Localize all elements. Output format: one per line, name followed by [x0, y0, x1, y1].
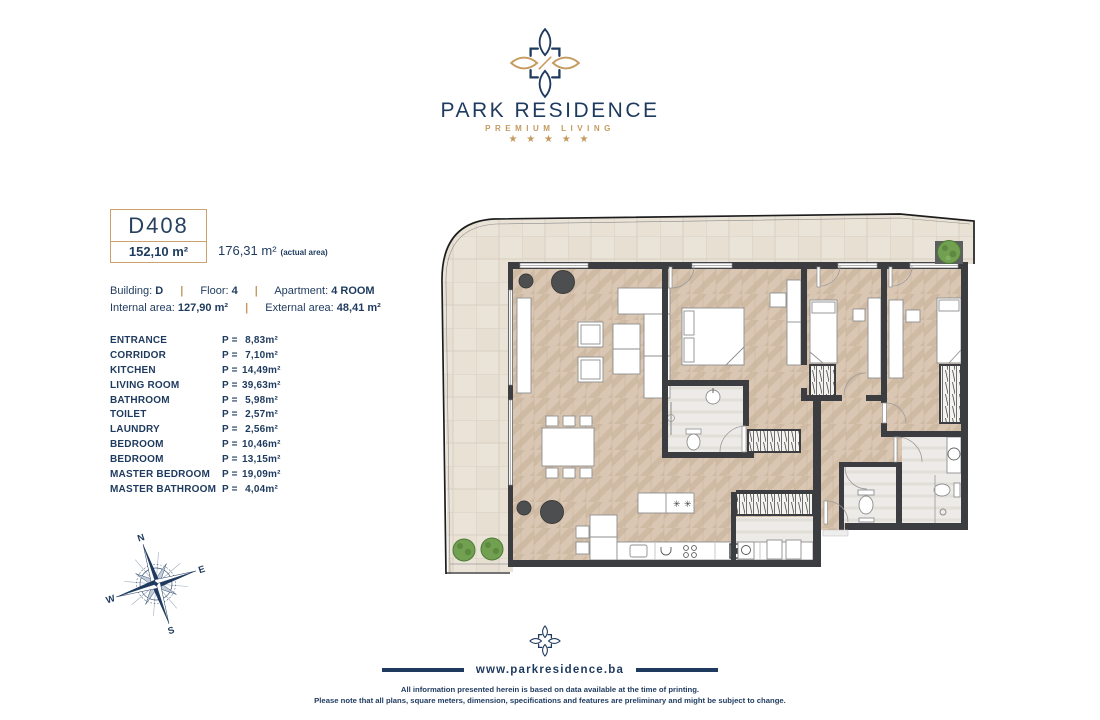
room-name: MASTER BATHROOM — [110, 484, 222, 499]
room-name: LIVING ROOM — [110, 380, 222, 395]
dining-chair — [580, 468, 592, 478]
dining-chair — [546, 468, 558, 478]
room-row-master-bedroom: MASTER BEDROOMP =19,09m² — [110, 469, 278, 484]
apartment-value: 4 ROOM — [331, 285, 374, 297]
compass-west-label: W — [105, 593, 117, 606]
pillow — [812, 302, 835, 313]
toilet-tank — [686, 429, 701, 434]
pillow — [684, 311, 694, 335]
unit-badge: D408 152,10 m² — [110, 209, 207, 263]
footer-emblem-icon — [529, 624, 561, 658]
room-schedule: ENTRANCEP =8,83m² CORRIDORP =7,10m² KITC… — [110, 335, 278, 499]
toilet-icon — [687, 434, 700, 450]
area-info-row: Internal area: 127,90 m² | External area… — [110, 302, 430, 314]
room-eq: P = — [222, 469, 242, 484]
internal-area-label: Internal area: — [110, 302, 175, 314]
building-label: Building: — [110, 285, 152, 297]
toilet-icon — [859, 496, 873, 514]
floor-label: Floor: — [200, 285, 228, 297]
brand-subtitle: PREMIUM LIVING — [0, 124, 1100, 133]
vanity-counter — [947, 437, 961, 473]
armchair-cushion — [581, 360, 600, 379]
actual-area-note: (actual area) — [281, 248, 328, 257]
dining-table — [542, 428, 594, 466]
floor-value: 4 — [232, 285, 238, 297]
toilet-tank — [954, 483, 960, 497]
left-rule — [382, 668, 464, 672]
bush-icon — [481, 538, 503, 560]
room-area: 39,63m² — [242, 380, 281, 395]
room-area: 7,10m² — [242, 350, 278, 365]
room-name: MASTER BEDROOM — [110, 469, 222, 484]
room-eq: P = — [222, 380, 242, 395]
compass-south-label: S — [167, 625, 176, 637]
room-eq: P = — [222, 395, 242, 410]
compass-north-label: N — [136, 532, 146, 545]
room-eq: P = — [222, 484, 242, 499]
apartment-label: Apartment: — [274, 285, 328, 297]
shelf — [906, 310, 920, 322]
building-value: D — [155, 285, 163, 297]
side-table — [517, 501, 531, 515]
separator: | — [231, 302, 262, 314]
pillow — [939, 300, 959, 311]
laundry — [738, 540, 801, 559]
website-url: www.parkresidence.ba — [464, 664, 636, 676]
park-residence-emblem-icon — [509, 27, 581, 99]
room-area: 2,57m² — [242, 409, 278, 424]
room-eq: P = — [222, 424, 242, 439]
dining-chair — [563, 416, 575, 426]
brochure-page: PARK RESIDENCE PREMIUM LIVING ★ ★ ★ ★ ★ … — [0, 0, 1100, 720]
hob-icon: ✳ — [684, 499, 692, 509]
hob-icon: ✳ — [673, 499, 681, 509]
laundry-cabinet — [786, 540, 801, 559]
coffee-table — [541, 501, 564, 524]
sink — [630, 545, 647, 557]
room-row-toilet: TOILETP =2,57m² — [110, 409, 278, 424]
external-area-label: External area: — [265, 302, 333, 314]
shelf — [853, 309, 865, 321]
internal-area-value: 127,90 m² — [178, 302, 228, 314]
washing-machine — [738, 542, 754, 559]
cabinet — [576, 526, 589, 538]
right-rule — [636, 668, 718, 672]
room-eq: P = — [222, 439, 242, 454]
room-eq: P = — [222, 350, 242, 365]
entrance-step — [823, 530, 848, 536]
room-area: 13,15m² — [242, 454, 281, 469]
building-info-row: Building: D | Floor: 4 | Apartment: 4 RO… — [110, 285, 430, 297]
room-name: BEDROOM — [110, 439, 222, 454]
compass-east-label: E — [197, 564, 206, 576]
five-stars-icon: ★ ★ ★ ★ ★ — [0, 134, 1100, 145]
unit-total-area: 152,10 m² — [111, 241, 206, 262]
bathroom-floor — [668, 386, 743, 452]
room-eq: P = — [222, 454, 242, 469]
room-row-bedroom-2: BEDROOMP =13,15m² — [110, 454, 278, 469]
corridor-wardrobe — [748, 430, 800, 452]
hallway-wardrobe — [736, 493, 813, 515]
desk — [868, 298, 881, 378]
pillow — [684, 338, 694, 362]
room-area: 2,56m² — [242, 424, 278, 439]
disclaimer-line-1: All information presented herein is base… — [0, 685, 1100, 694]
wardrobe — [787, 280, 801, 365]
actual-area-value: 176,31 m² — [218, 243, 277, 258]
room-area: 8,83m² — [242, 335, 278, 350]
room-row-entrance: ENTRANCEP =8,83m² — [110, 335, 278, 350]
room-row-living-room: LIVING ROOMP =39,63m² — [110, 380, 278, 395]
room-area: 4,04m² — [242, 484, 278, 499]
toilet-tank — [858, 490, 874, 495]
bush-icon — [453, 539, 475, 561]
room-area: 5,98m² — [242, 395, 278, 410]
room-name: CORRIDOR — [110, 350, 222, 365]
website-row: www.parkresidence.ba — [0, 661, 1100, 679]
dining-chair — [563, 468, 575, 478]
room-row-laundry: LAUNDRYP =2,56m² — [110, 424, 278, 439]
room-row-bedroom-1: BEDROOMP =10,46m² — [110, 439, 278, 454]
side-table — [519, 274, 533, 288]
cabinet — [576, 542, 589, 554]
room-area: 10,46m² — [242, 439, 281, 454]
actual-area: 176,31 m²(actual area) — [218, 243, 328, 258]
room-name: TOILET — [110, 409, 222, 424]
room-row-kitchen: KITCHENP =14,49m² — [110, 365, 278, 380]
room-row-bathroom: BATHROOMP =5,98m² — [110, 395, 278, 410]
wardrobe — [940, 365, 961, 423]
room-name: BEDROOM — [110, 454, 222, 469]
bedside-table — [770, 293, 786, 307]
room-row-master-bathroom: MASTER BATHROOMP =4,04m² — [110, 484, 278, 499]
room-area: 14,49m² — [242, 365, 281, 380]
room-area: 19,09m² — [242, 469, 281, 484]
separator: | — [166, 285, 197, 297]
room-eq: P = — [222, 365, 242, 380]
toilet-base — [859, 518, 874, 522]
coffee-table — [552, 271, 575, 294]
external-area-value: 48,41 m² — [337, 302, 381, 314]
separator: | — [241, 285, 272, 297]
room-eq: P = — [222, 409, 242, 424]
room-name: LAUNDRY — [110, 424, 222, 439]
console-table — [517, 298, 531, 393]
toilet-icon — [934, 484, 950, 496]
compass-rose-icon: N E S W — [100, 528, 212, 640]
floor-plan: ✳ ✳ — [430, 190, 990, 585]
brand-title: PARK RESIDENCE — [0, 99, 1100, 123]
room-name: BATHROOM — [110, 395, 222, 410]
dining-chair — [546, 416, 558, 426]
room-name: KITCHEN — [110, 365, 222, 380]
armchair-cushion — [581, 325, 600, 344]
desk — [889, 300, 903, 378]
room-row-corridor: CORRIDORP =7,10m² — [110, 350, 278, 365]
fridge-cabinet — [590, 515, 617, 560]
disclaimer-line-2: Please note that all plans, square meter… — [0, 696, 1100, 705]
wardrobe — [810, 365, 835, 399]
room-name: ENTRANCE — [110, 335, 222, 350]
room-eq: P = — [222, 335, 242, 350]
laundry-cabinet — [767, 540, 782, 559]
unit-code: D408 — [111, 210, 206, 241]
dining-chair — [580, 416, 592, 426]
